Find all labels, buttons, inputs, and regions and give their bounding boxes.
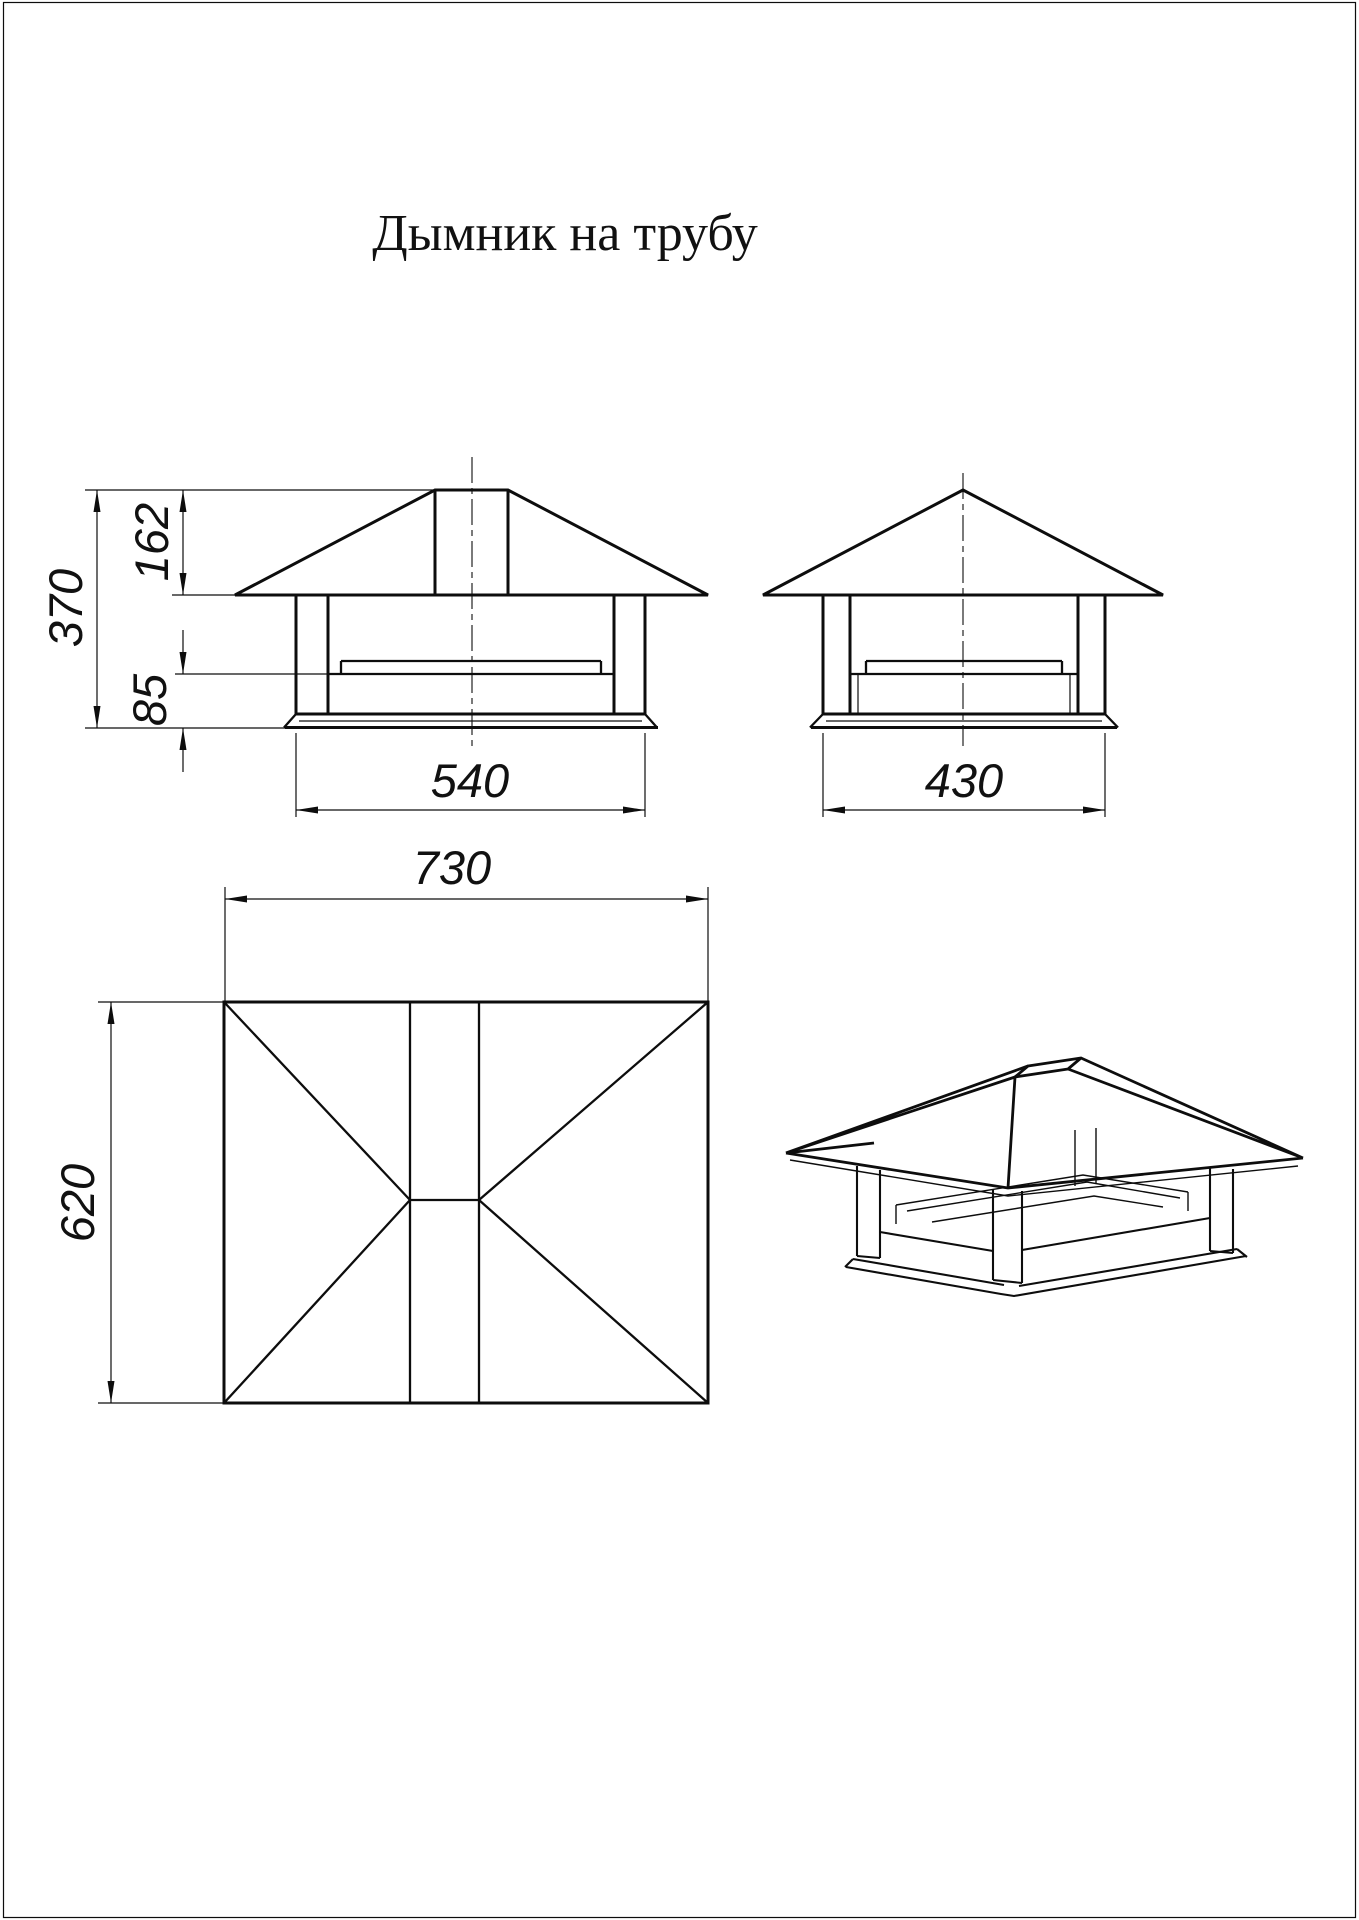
dimension-plan-width: 730 — [225, 841, 708, 1002]
top-view — [224, 1002, 708, 1403]
iso-rim-verticals — [896, 1192, 1188, 1224]
plan-outline — [224, 1002, 708, 1403]
dimension-total-height: 370 — [39, 490, 433, 728]
dim-730-label: 730 — [413, 841, 491, 894]
dim-430-label: 430 — [925, 754, 1003, 807]
drawing-sheet: Дымник на трубу — [0, 0, 1359, 1920]
dimension-roof-height: 162 — [125, 490, 237, 595]
dim-540-label: 540 — [431, 754, 509, 807]
side-view — [763, 473, 1163, 746]
iso-roof-hips — [786, 1058, 1303, 1188]
drawing-canvas: 370 162 85 540 430 — [0, 0, 1359, 1920]
front-view — [235, 457, 708, 746]
side-tray — [850, 661, 1078, 674]
dim-85-label: 85 — [123, 673, 176, 726]
iso-roof-eaves — [786, 1153, 1303, 1188]
dim-370-label: 370 — [39, 569, 92, 647]
iso-base-top-edges — [880, 1218, 1210, 1251]
side-posts — [823, 596, 1105, 714]
dimension-base-width-side: 430 — [823, 733, 1105, 817]
page-border — [4, 3, 1356, 1918]
dimension-plan-depth: 620 — [51, 1002, 224, 1403]
front-tray — [328, 661, 614, 674]
iso-opening-rim-outer — [896, 1175, 1188, 1205]
front-posts — [296, 596, 645, 714]
iso-tray-edge — [932, 1196, 1163, 1222]
plan-hip-lines — [224, 1002, 708, 1403]
iso-base-flange — [845, 1249, 1247, 1296]
side-box-inner-edges — [858, 674, 1070, 714]
plan-ridge-band-edges — [410, 1002, 479, 1403]
dim-620-label: 620 — [51, 1164, 104, 1242]
dimension-base-width-front: 540 — [296, 733, 645, 817]
iso-view — [786, 1058, 1303, 1296]
dim-162-label: 162 — [125, 503, 178, 581]
